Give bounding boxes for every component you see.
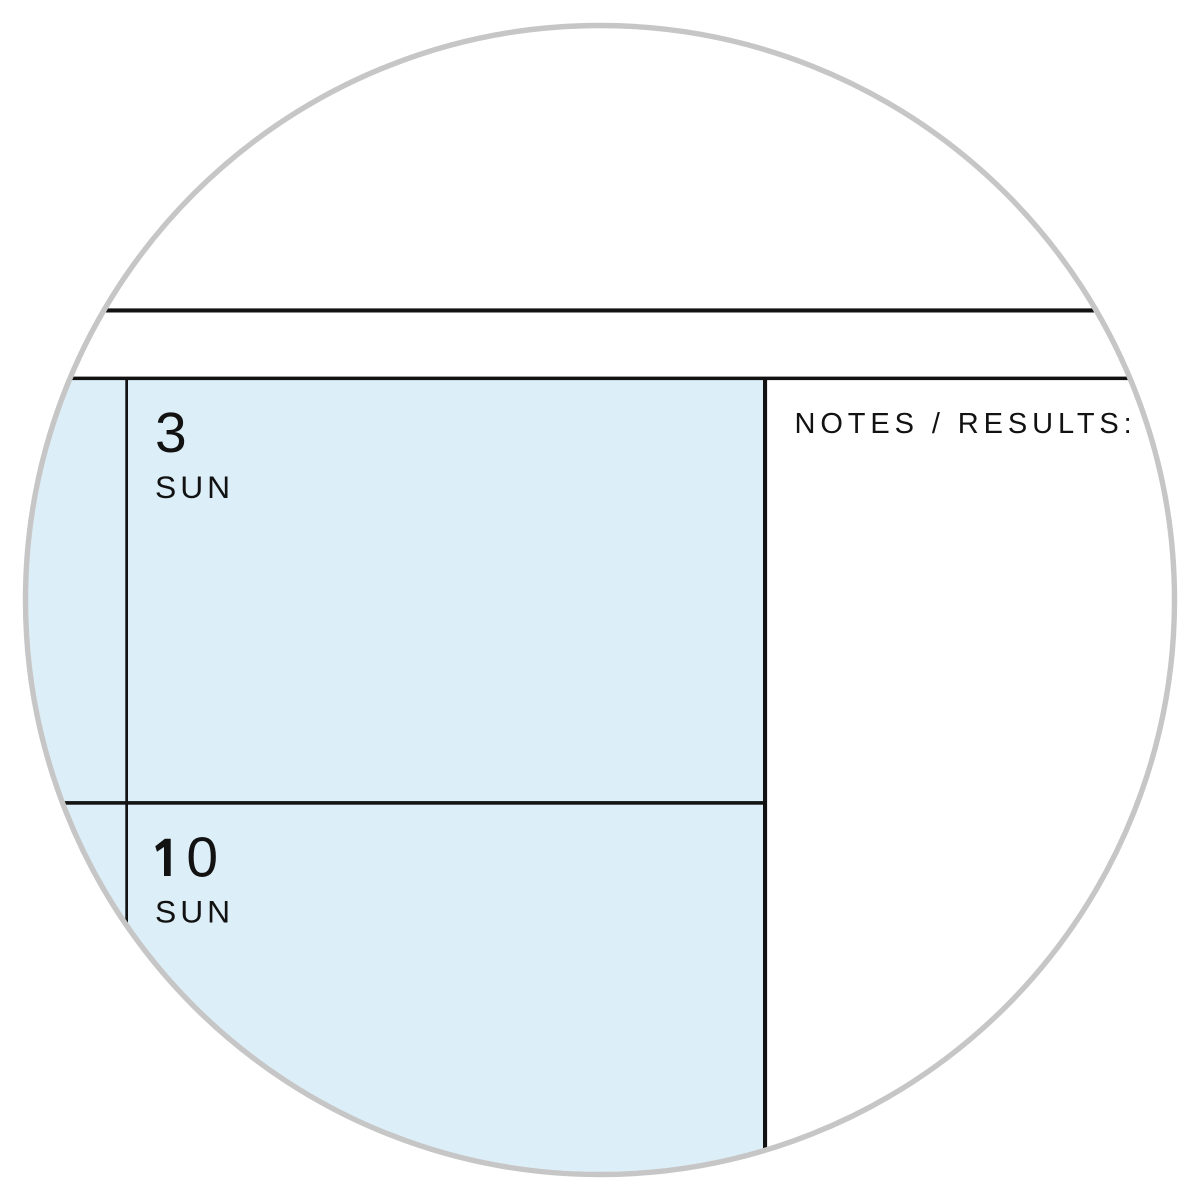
- svg-text:0: 0: [186, 826, 218, 890]
- svg-text:SUN: SUN: [155, 893, 234, 929]
- svg-text:SUN: SUN: [155, 469, 234, 505]
- svg-text:NOTES / RESULTS:: NOTES / RESULTS:: [795, 408, 1137, 440]
- svg-text:3: 3: [155, 401, 187, 465]
